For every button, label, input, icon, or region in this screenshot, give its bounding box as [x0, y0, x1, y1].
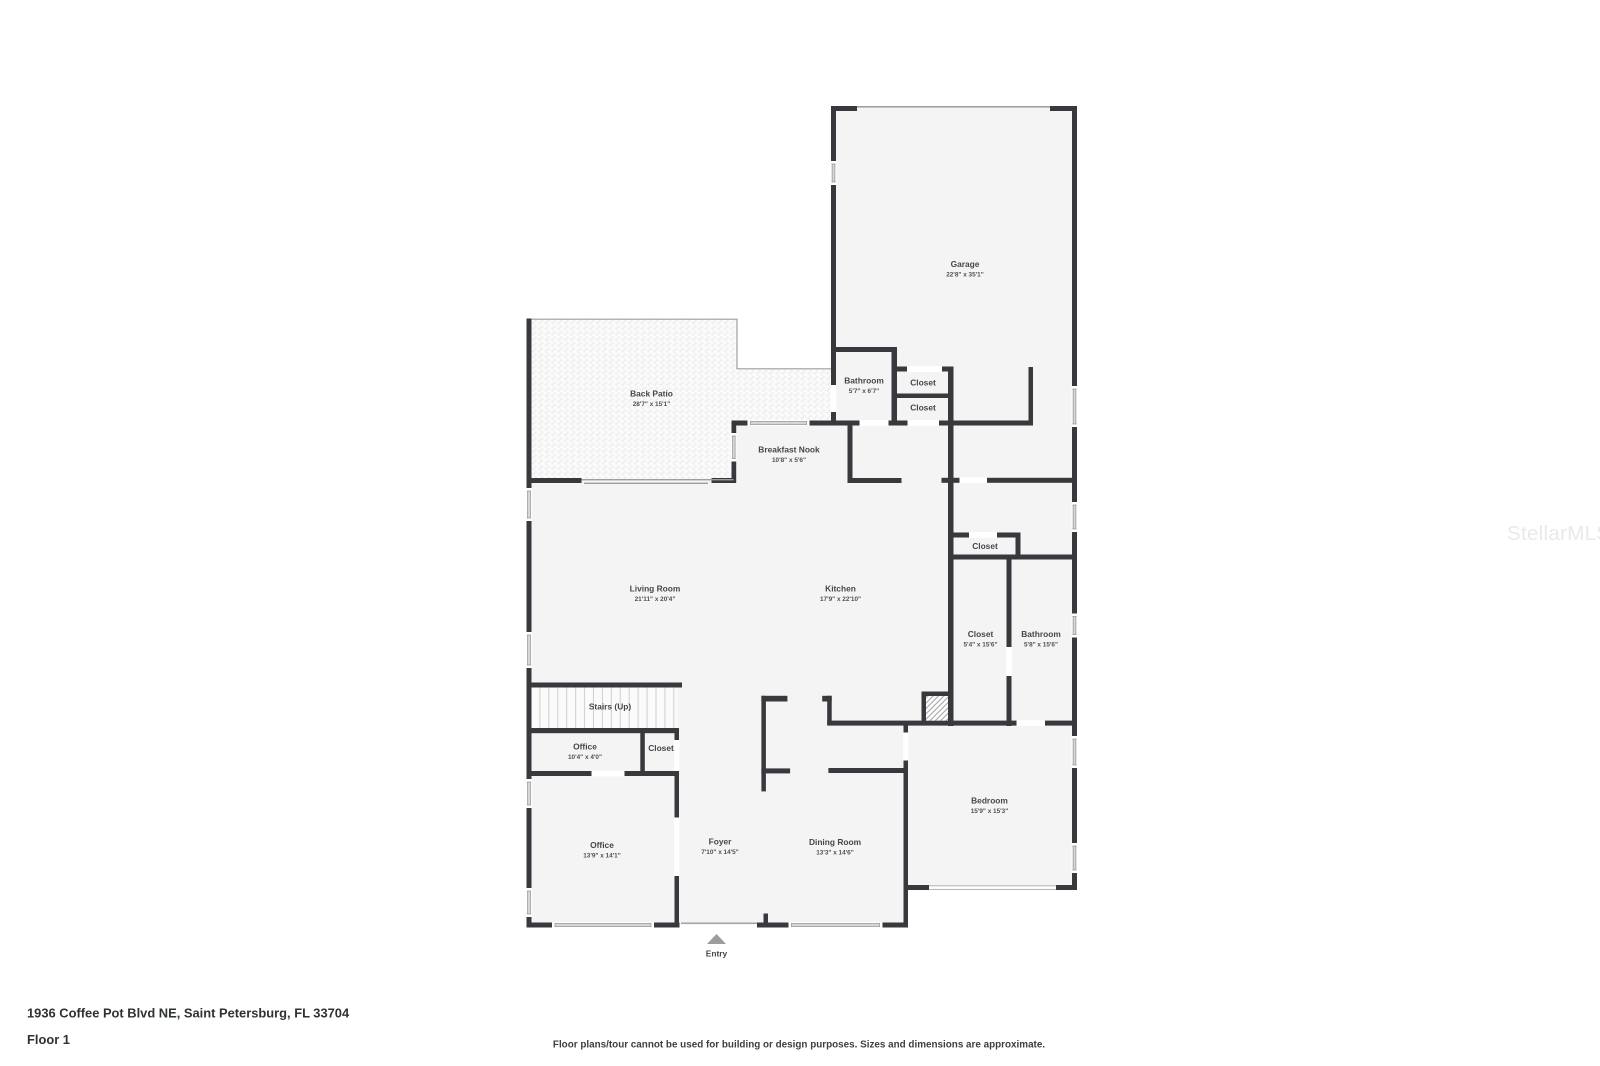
svg-text:10'4" x 4'0": 10'4" x 4'0": [568, 754, 602, 761]
svg-text:28'7" x 15'1": 28'7" x 15'1": [633, 401, 671, 408]
svg-text:13'9" x 14'1": 13'9" x 14'1": [583, 852, 621, 859]
svg-text:15'9" x 15'3": 15'9" x 15'3": [971, 808, 1009, 815]
svg-text:Kitchen: Kitchen: [825, 584, 856, 594]
svg-text:5'4" x 15'6": 5'4" x 15'6": [964, 641, 998, 648]
svg-text:13'3" x 14'6": 13'3" x 14'6": [816, 849, 854, 856]
svg-text:21'11" x 20'4": 21'11" x 20'4": [635, 596, 676, 603]
svg-text:17'9" x 22'10": 17'9" x 22'10": [820, 596, 861, 603]
svg-text:Floor 1: Floor 1: [27, 1032, 70, 1047]
svg-text:5'7" x 6'7": 5'7" x 6'7": [849, 388, 879, 395]
svg-text:7'10" x 14'5": 7'10" x 14'5": [701, 849, 739, 856]
svg-text:Closet: Closet: [648, 743, 674, 753]
svg-text:Dining Room: Dining Room: [809, 837, 861, 847]
svg-text:Bathroom: Bathroom: [844, 376, 884, 386]
svg-text:StellarMLS: StellarMLS: [1507, 522, 1600, 545]
svg-text:Back Patio: Back Patio: [630, 389, 673, 399]
svg-text:10'8" x 5'6": 10'8" x 5'6": [772, 457, 806, 464]
svg-text:Stairs (Up): Stairs (Up): [589, 702, 632, 712]
svg-text:22'8" x 35'1": 22'8" x 35'1": [946, 271, 984, 278]
svg-text:1936 Coffee Pot Blvd NE, Saint: 1936 Coffee Pot Blvd NE, Saint Petersbur…: [27, 1006, 350, 1021]
svg-text:Breakfast Nook: Breakfast Nook: [758, 445, 820, 455]
svg-text:Closet: Closet: [910, 403, 936, 413]
svg-text:Closet: Closet: [968, 629, 994, 639]
svg-text:5'8" x 15'6": 5'8" x 15'6": [1024, 641, 1058, 648]
svg-text:Office: Office: [573, 742, 597, 752]
svg-text:Closet: Closet: [910, 378, 936, 388]
svg-text:Bedroom: Bedroom: [971, 796, 1008, 806]
svg-text:Bathroom: Bathroom: [1021, 629, 1061, 639]
svg-text:Entry: Entry: [706, 949, 728, 959]
svg-text:Foyer: Foyer: [709, 837, 733, 847]
svg-text:Floor plans/tour cannot be use: Floor plans/tour cannot be used for buil…: [553, 1040, 1045, 1051]
svg-text:Garage: Garage: [951, 259, 980, 269]
svg-text:Living Room: Living Room: [630, 584, 681, 594]
svg-text:Closet: Closet: [972, 541, 998, 551]
svg-text:Office: Office: [590, 840, 614, 850]
